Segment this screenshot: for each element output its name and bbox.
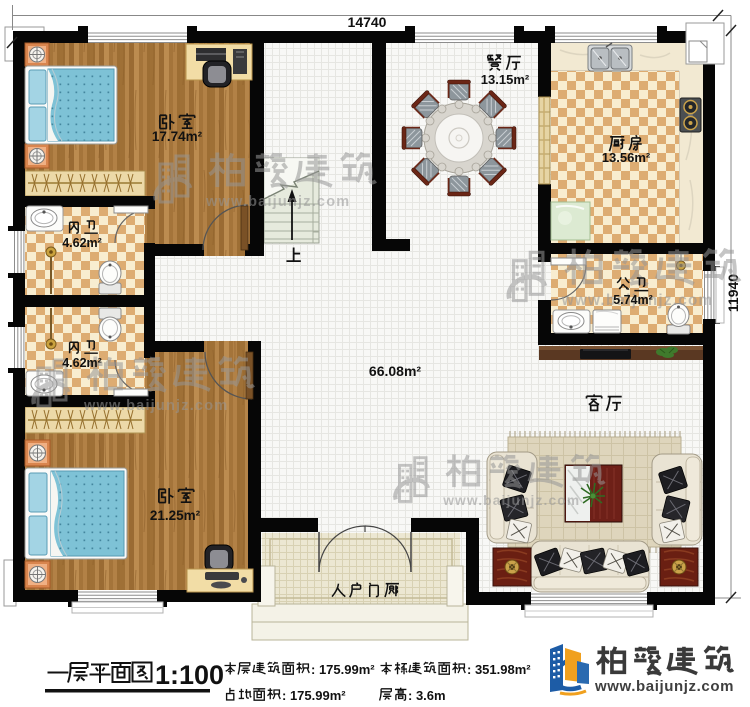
svg-text:www.baijunjz.com: www.baijunjz.com (594, 678, 734, 695)
svg-text:13.56m²: 13.56m² (602, 150, 651, 165)
svg-text:: 351.98m²: : 351.98m² (467, 662, 531, 677)
svg-text:5.74m²: 5.74m² (613, 293, 653, 307)
svg-text:14740: 14740 (348, 14, 387, 30)
svg-text:1:100: 1:100 (155, 660, 224, 690)
svg-text:21.25m²: 21.25m² (150, 508, 201, 523)
svg-text:66.08m²: 66.08m² (369, 363, 421, 379)
svg-text:: 175.99m²: : 175.99m² (282, 688, 346, 703)
svg-text:: 175.99m²: : 175.99m² (311, 662, 375, 677)
svg-text:17.74m²: 17.74m² (152, 129, 203, 144)
svg-text:4.62m²: 4.62m² (62, 236, 102, 250)
svg-text:: 3.6m: : 3.6m (408, 688, 446, 703)
svg-text:4.62m²: 4.62m² (62, 356, 102, 370)
svg-text:13.15m²: 13.15m² (481, 72, 530, 87)
